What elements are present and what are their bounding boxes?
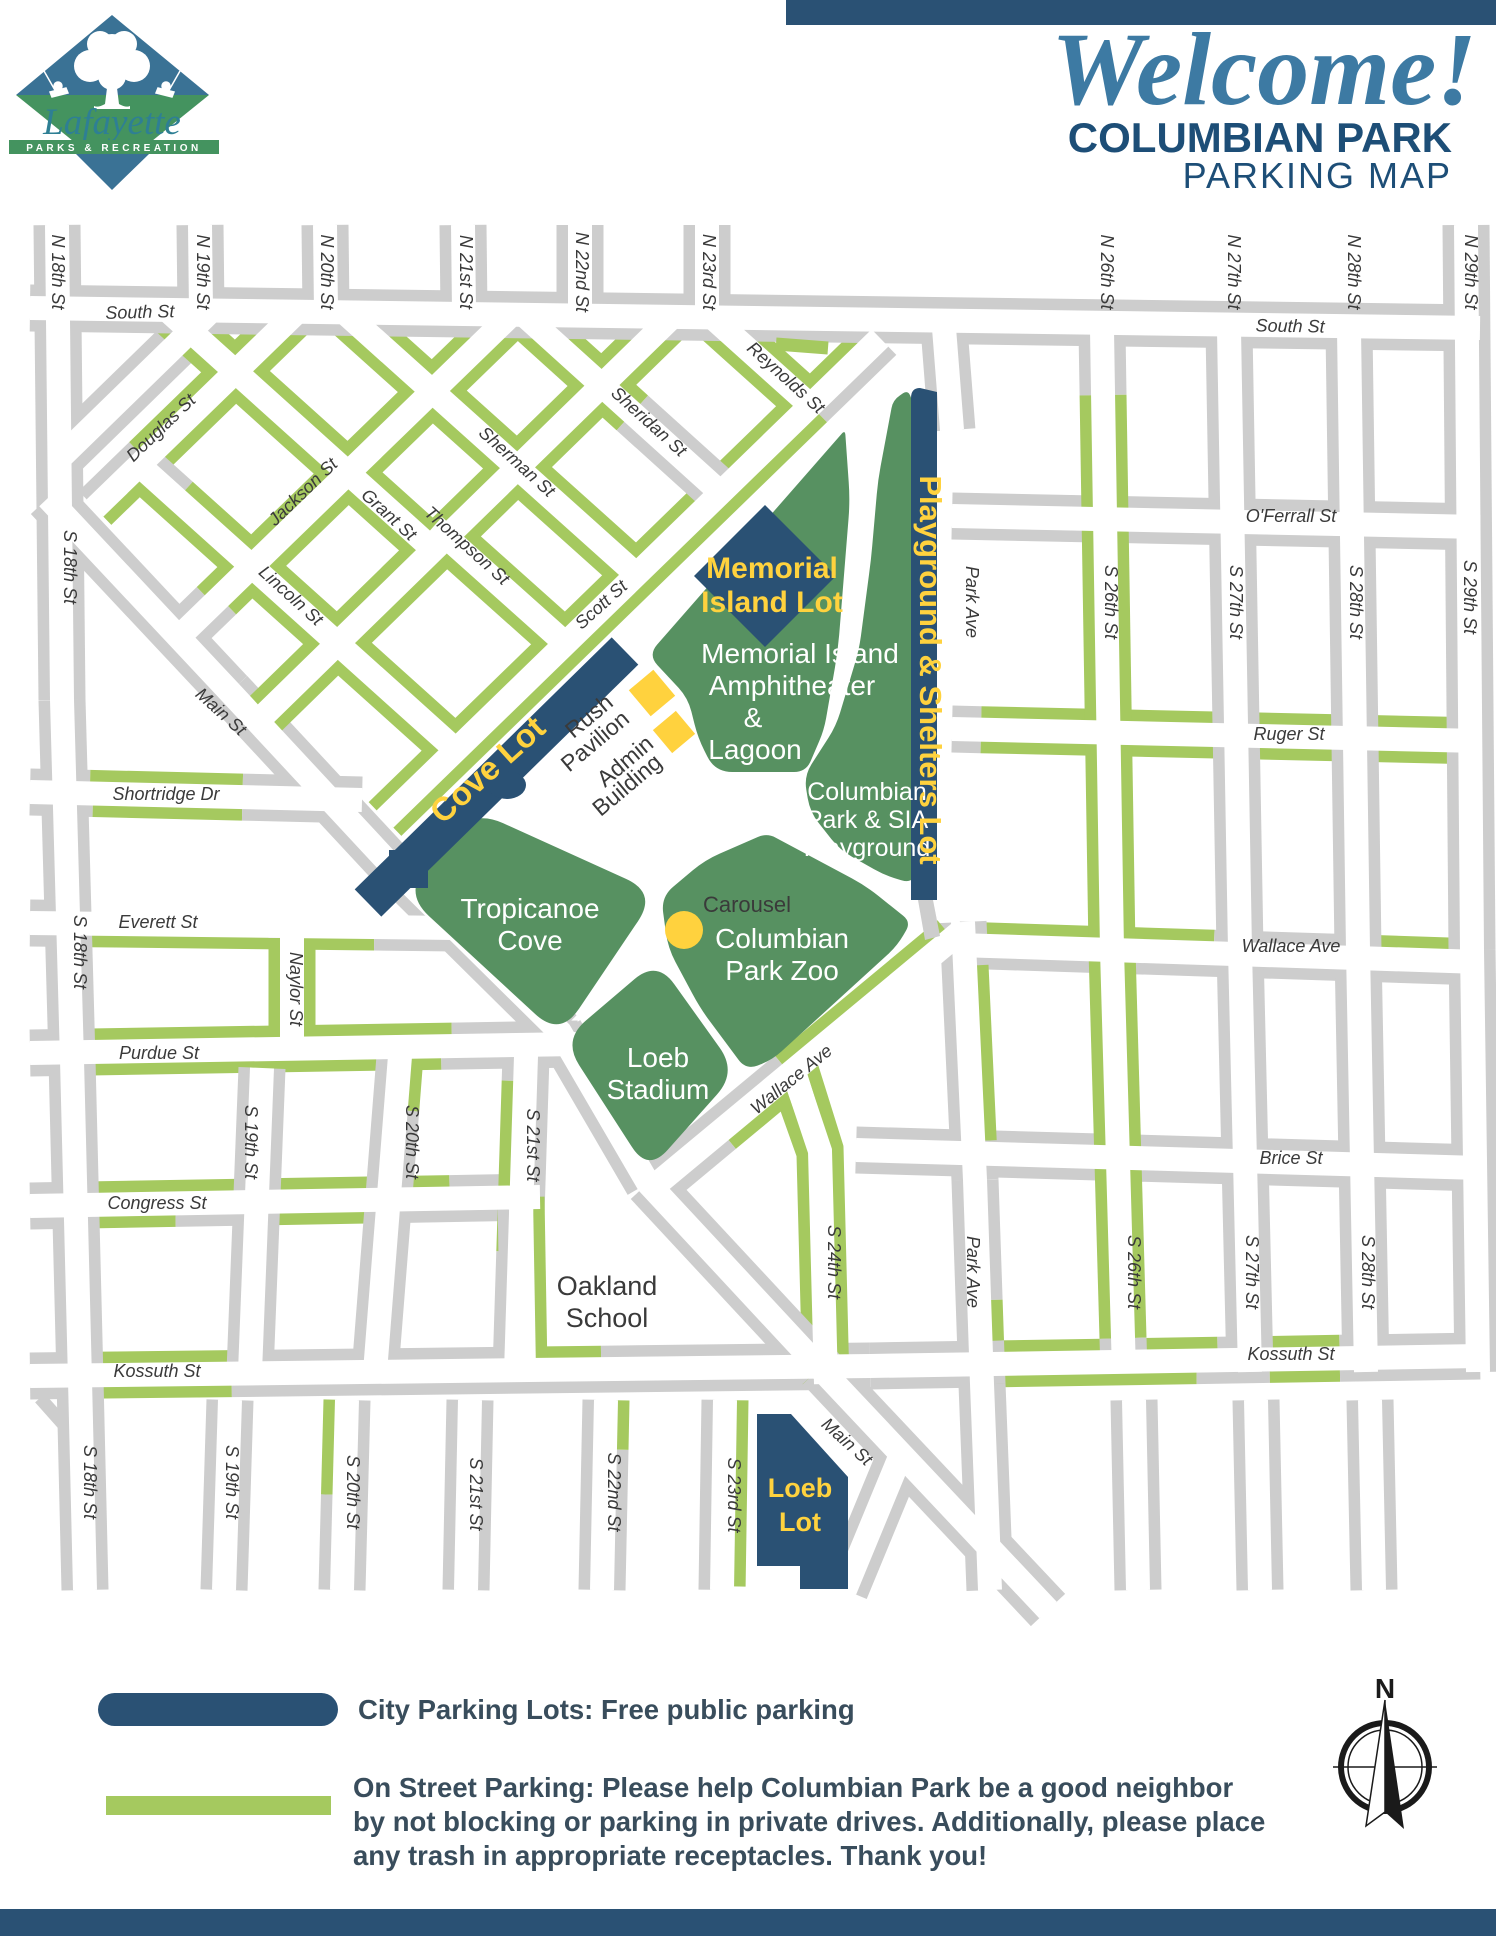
svg-text:O'Ferrall St: O'Ferrall St bbox=[1246, 506, 1337, 526]
svg-text:Congress St: Congress St bbox=[107, 1193, 207, 1213]
svg-text:S 18th St: S 18th St bbox=[70, 915, 90, 990]
svg-text:Island Lot: Island Lot bbox=[701, 586, 843, 619]
svg-text:Amphitheater: Amphitheater bbox=[709, 670, 876, 701]
svg-text:S 26th St: S 26th St bbox=[1101, 565, 1121, 640]
svg-text:Playground & Shelters Lot: Playground & Shelters Lot bbox=[913, 475, 948, 864]
svg-text:by not blocking or parking in: by not blocking or parking in private dr… bbox=[353, 1806, 1265, 1837]
svg-text:COLUMBIAN PARK: COLUMBIAN PARK bbox=[1068, 114, 1452, 161]
svg-text:S 21st St: S 21st St bbox=[523, 1108, 543, 1182]
svg-text:Loeb: Loeb bbox=[627, 1042, 689, 1073]
svg-text:N 19th St: N 19th St bbox=[193, 234, 213, 310]
svg-text:S 22nd St: S 22nd St bbox=[604, 1452, 624, 1532]
svg-text:Welcome!: Welcome! bbox=[1051, 12, 1477, 127]
svg-text:Shortridge Dr: Shortridge Dr bbox=[112, 784, 220, 804]
svg-text:Naylor St: Naylor St bbox=[286, 952, 306, 1027]
svg-text:S 23rd St: S 23rd St bbox=[724, 1457, 744, 1533]
svg-text:S 27th St: S 27th St bbox=[1226, 565, 1246, 640]
svg-text:PARKING MAP: PARKING MAP bbox=[1183, 155, 1452, 196]
svg-text:S 24th St: S 24th St bbox=[824, 1225, 844, 1300]
svg-text:S 18th St: S 18th St bbox=[80, 1445, 100, 1520]
svg-text:N 28th St: N 28th St bbox=[1344, 234, 1364, 310]
svg-text:Carousel: Carousel bbox=[703, 892, 791, 917]
svg-text:&: & bbox=[744, 702, 763, 733]
svg-text:S 29th St: S 29th St bbox=[1460, 560, 1480, 635]
svg-text:Memorial Island: Memorial Island bbox=[701, 638, 899, 669]
svg-text:Tropicanoe: Tropicanoe bbox=[460, 893, 599, 924]
svg-text:S 21st St: S 21st St bbox=[466, 1457, 486, 1531]
svg-text:Kossuth St: Kossuth St bbox=[113, 1361, 201, 1381]
svg-text:Purdue St: Purdue St bbox=[119, 1043, 200, 1063]
svg-text:N 27th St: N 27th St bbox=[1224, 234, 1244, 310]
svg-text:South St: South St bbox=[1255, 315, 1325, 336]
svg-text:South St: South St bbox=[105, 301, 176, 323]
svg-text:N 21st St: N 21st St bbox=[456, 235, 476, 310]
svg-text:N 18th St: N 18th St bbox=[48, 234, 68, 310]
svg-text:S 19th St: S 19th St bbox=[222, 1445, 242, 1520]
svg-text:Everett St: Everett St bbox=[118, 912, 198, 932]
svg-text:Cove: Cove bbox=[497, 925, 562, 956]
svg-text:Lagoon: Lagoon bbox=[708, 734, 801, 765]
svg-text:Columbian: Columbian bbox=[715, 923, 849, 954]
svg-text:Lafayette: Lafayette bbox=[42, 102, 181, 143]
svg-text:S 20th St: S 20th St bbox=[402, 1105, 422, 1180]
svg-text:Memorial: Memorial bbox=[706, 552, 838, 585]
svg-text:Lot: Lot bbox=[779, 1507, 821, 1537]
svg-text:S 28th St: S 28th St bbox=[1358, 1235, 1378, 1310]
svg-text:PARKS & RECREATION: PARKS & RECREATION bbox=[26, 143, 201, 154]
svg-text:N 23rd St: N 23rd St bbox=[699, 234, 719, 311]
svg-text:N: N bbox=[1375, 1673, 1395, 1704]
svg-text:Stadium: Stadium bbox=[607, 1074, 710, 1105]
svg-text:Park Ave: Park Ave bbox=[963, 1236, 983, 1308]
svg-text:N 29th St: N 29th St bbox=[1461, 234, 1481, 310]
svg-text:Oakland: Oakland bbox=[557, 1271, 658, 1301]
svg-text:S 19th St: S 19th St bbox=[241, 1105, 261, 1180]
svg-text:N 20th St: N 20th St bbox=[317, 234, 337, 310]
svg-text:Ruger St: Ruger St bbox=[1253, 724, 1325, 744]
svg-text:Wallace Ave: Wallace Ave bbox=[1242, 936, 1341, 956]
svg-text:N 26th St: N 26th St bbox=[1097, 234, 1117, 310]
svg-text:On Street Parking: Please help: On Street Parking: Please help Columbian… bbox=[353, 1772, 1233, 1803]
svg-text:S 20th St: S 20th St bbox=[343, 1455, 363, 1530]
svg-text:S 26th St: S 26th St bbox=[1124, 1235, 1144, 1310]
svg-text:Park Zoo: Park Zoo bbox=[725, 955, 839, 986]
svg-text:Park Ave: Park Ave bbox=[962, 566, 982, 638]
svg-text:Playground: Playground bbox=[804, 834, 930, 862]
svg-text:S 18th St: S 18th St bbox=[60, 530, 80, 605]
svg-text:Loeb: Loeb bbox=[768, 1473, 833, 1503]
svg-text:Brice St: Brice St bbox=[1259, 1148, 1323, 1168]
svg-text:City Parking Lots: Free public: City Parking Lots: Free public parking bbox=[358, 1694, 855, 1725]
svg-text:Kossuth St: Kossuth St bbox=[1247, 1344, 1335, 1364]
svg-text:S 28th St: S 28th St bbox=[1346, 565, 1366, 640]
svg-text:S 27th St: S 27th St bbox=[1242, 1235, 1262, 1310]
svg-text:N 22nd St: N 22nd St bbox=[572, 232, 592, 313]
svg-text:any trash in appropriate recep: any trash in appropriate receptacles. Th… bbox=[353, 1840, 987, 1871]
svg-text:School: School bbox=[566, 1303, 649, 1333]
svg-text:Park & SIA: Park & SIA bbox=[806, 806, 929, 834]
svg-text:Columbian: Columbian bbox=[807, 778, 927, 806]
